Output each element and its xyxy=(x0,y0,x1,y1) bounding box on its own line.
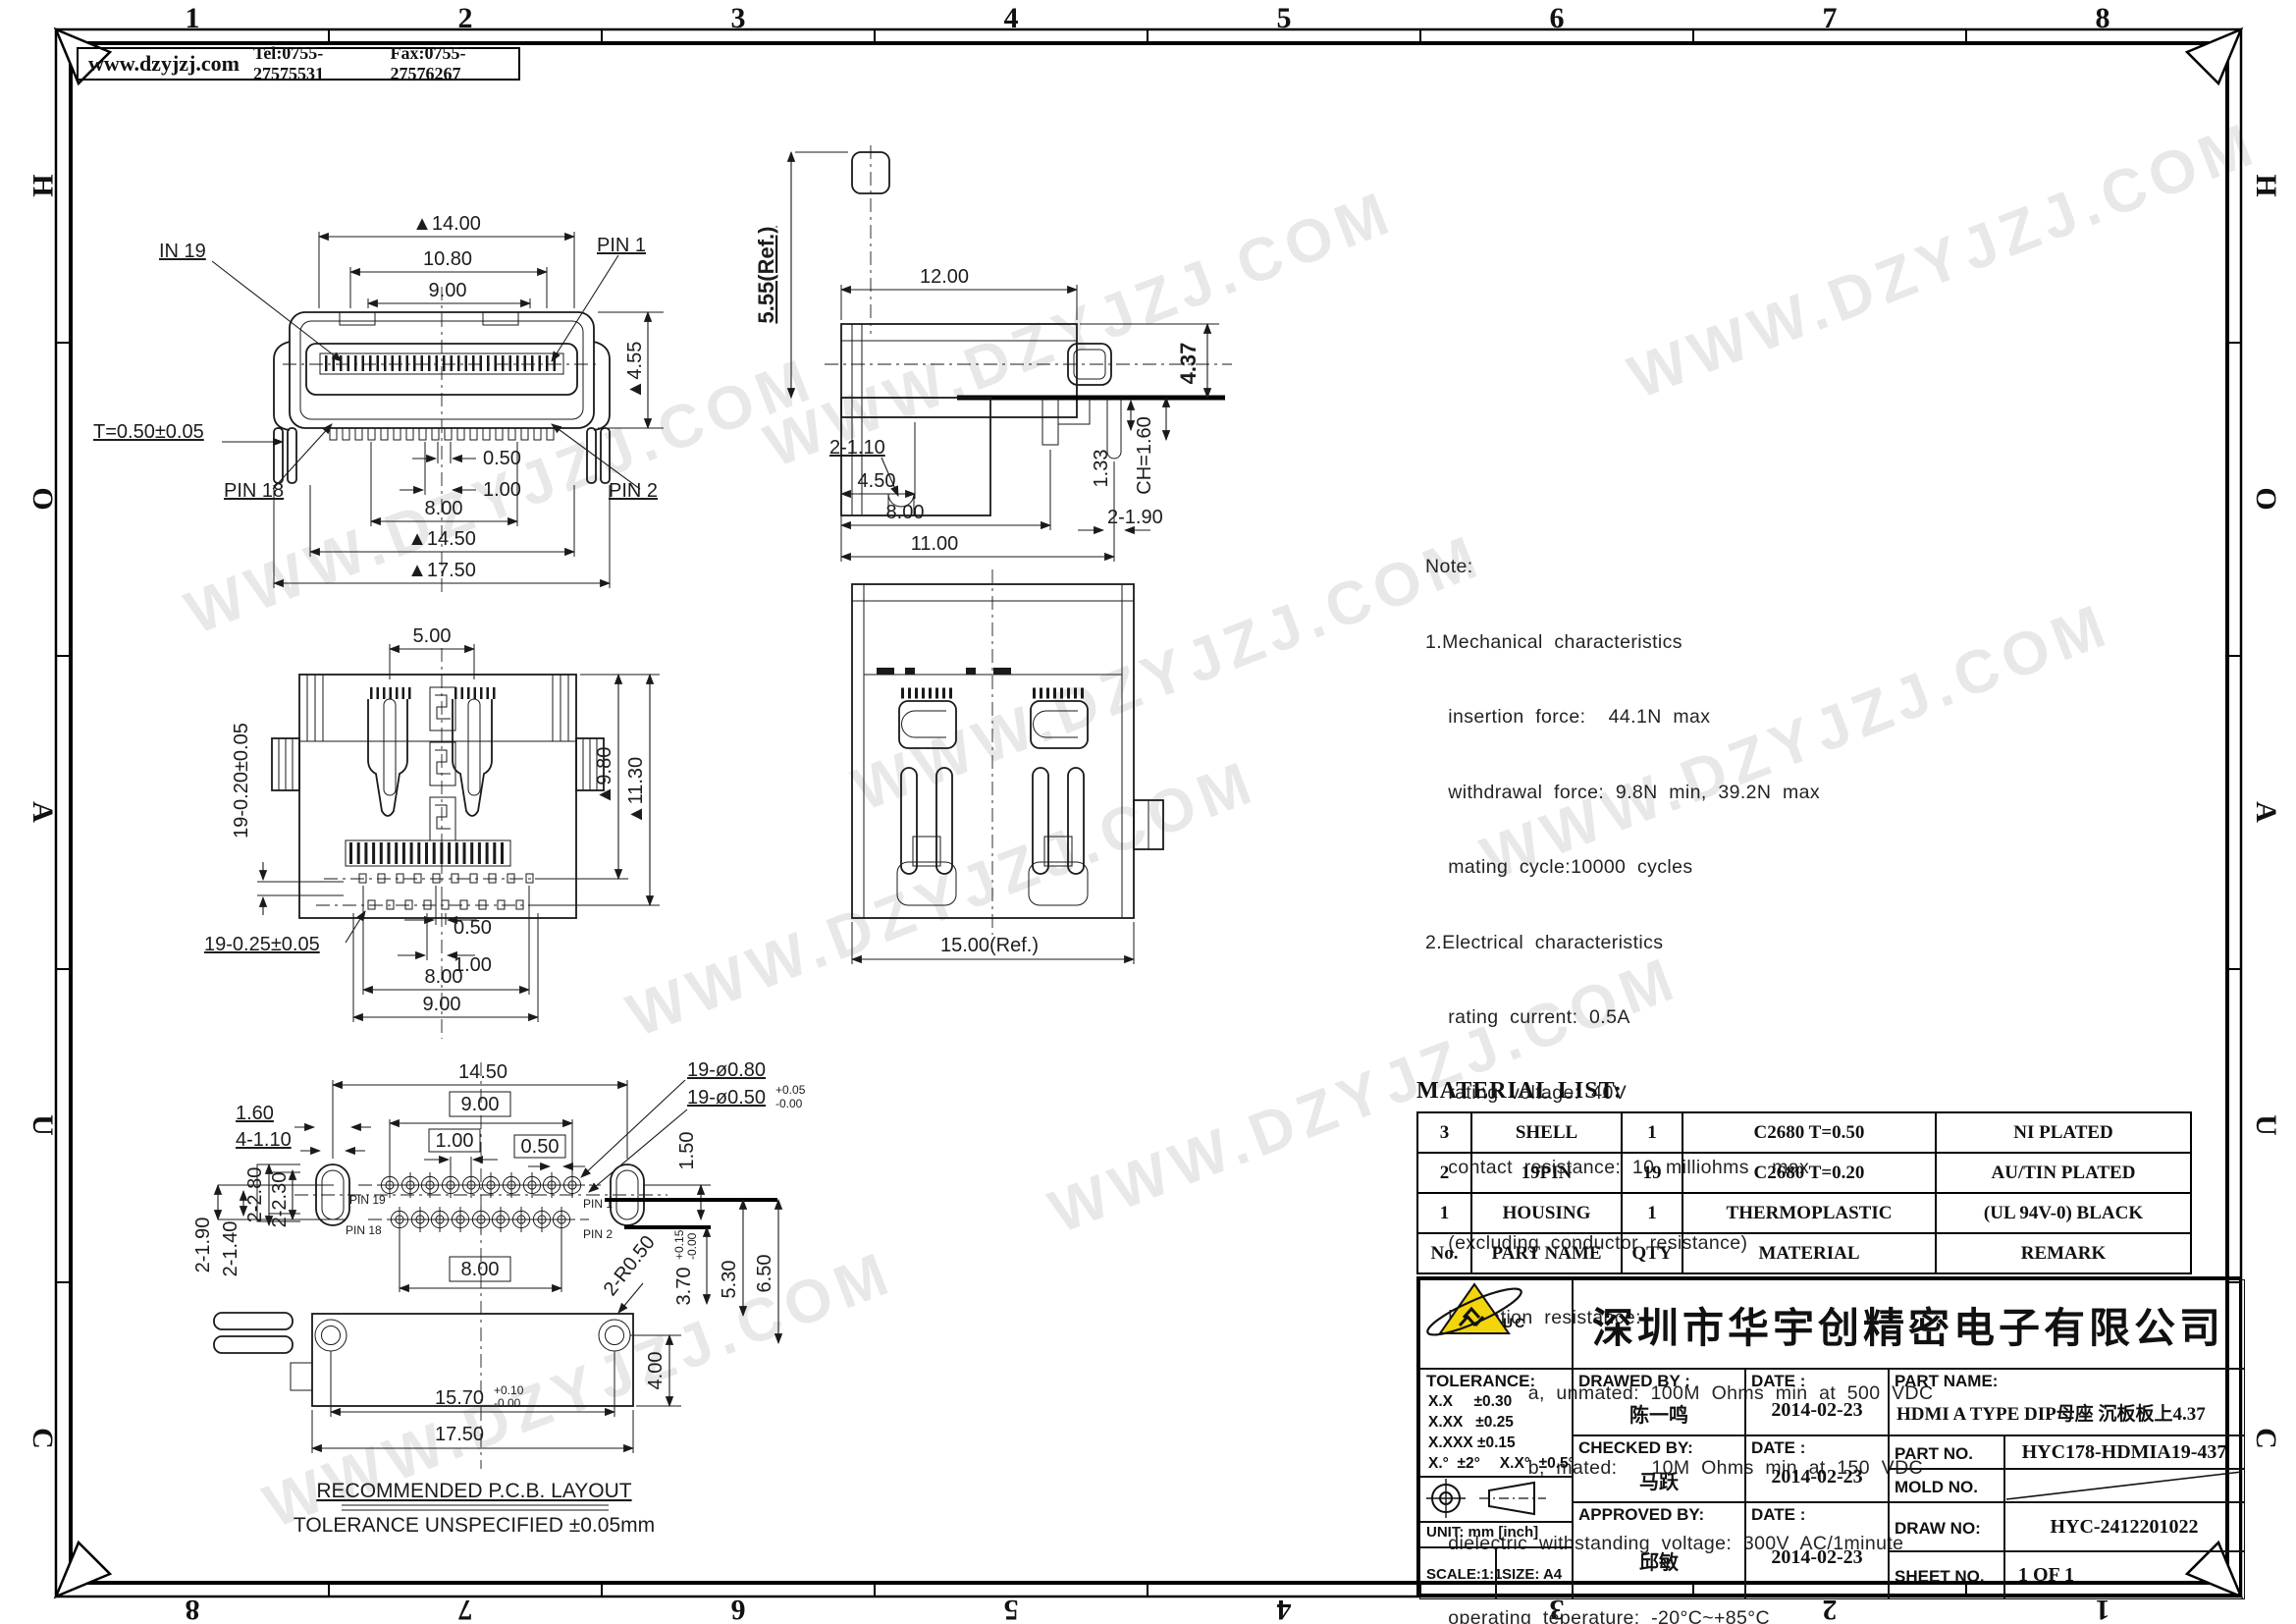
dim-tolerance: +0.15 xyxy=(672,1229,686,1260)
zone-right-5: C xyxy=(2249,1419,2282,1458)
pcb-caption-tolerance: TOLERANCE UNSPECIFIED ±0.05mm xyxy=(294,1514,655,1537)
sheet-no-label-cell: SHEET NO. xyxy=(1888,1550,2005,1599)
dim: 2-2.80 xyxy=(244,1167,266,1223)
date-cell: DATE : 2014-02-23 xyxy=(1744,1501,1890,1599)
company-logo: HOAUC xyxy=(1419,1279,1574,1370)
zone-right-1: H xyxy=(2249,166,2282,205)
note-line: insertion force: 44.1N max xyxy=(1425,705,1998,731)
tolerance-box: TOLERANCE: X.X ±0.30 X.XX ±0.25 X.XXX ±0… xyxy=(1419,1368,1574,1478)
label-pin19: PIN 19 xyxy=(349,1193,386,1207)
mold-no-label: MOLD NO. xyxy=(1889,1475,1978,1497)
view-pcb-layout: 14.50 9.00 1.00 0.50 1.60 4-1.10 2-2.80 xyxy=(192,1059,806,1537)
dim: 1.50 xyxy=(676,1132,698,1170)
dim: 10.80 xyxy=(423,248,472,270)
cell-material: THERMOPLASTIC xyxy=(1682,1193,1936,1233)
dim: 5.55(Ref.) xyxy=(754,226,778,323)
dim: CH=1.60 xyxy=(1134,416,1155,495)
zone-left-1: H xyxy=(26,166,59,205)
date-value: 2014-02-23 xyxy=(1745,1399,1889,1422)
date-value: 2014-02-23 xyxy=(1745,1546,1889,1569)
tolerance-title: TOLERANCE: xyxy=(1420,1369,1573,1391)
date-label: DATE : xyxy=(1745,1435,1889,1458)
dim: 4-1.10 xyxy=(236,1129,292,1151)
zone-top-5: 5 xyxy=(1264,2,1304,35)
latch-contact xyxy=(453,693,496,816)
zone-top-7: 7 xyxy=(1810,2,1849,35)
zone-left-2: O xyxy=(26,479,59,518)
zone-bottom-7: 7 xyxy=(446,1593,485,1624)
note-line: 1.Mechanical characteristics xyxy=(1425,630,1998,656)
dim: 8.00 xyxy=(425,498,463,519)
date-cell: DATE : 2014-02-23 xyxy=(1744,1435,1890,1503)
zone-top-4: 4 xyxy=(991,2,1031,35)
latch-contact xyxy=(368,693,411,816)
zone-right-2: O xyxy=(2249,479,2282,518)
zone-left-4: U xyxy=(26,1106,59,1145)
sheet-no-value: 1 OF 1 xyxy=(2003,1550,2245,1599)
dim-tolerance: +0.10 xyxy=(494,1383,524,1397)
dim: ▲14.50 xyxy=(407,528,476,550)
dim: 4.37 xyxy=(1176,343,1201,385)
dip-pin-row-b xyxy=(368,900,523,909)
dim: 4.50 xyxy=(858,470,896,492)
tolerance-angle: X.° ±2° xyxy=(1420,1453,1480,1474)
header-no: No. xyxy=(1417,1233,1471,1273)
dim: 6.50 xyxy=(754,1255,775,1293)
cell-part: 19PIN xyxy=(1471,1153,1622,1193)
dim: 12.00 xyxy=(920,266,969,288)
dim: ▲14.00 xyxy=(412,213,481,235)
draw-no-label: DRAW NO: xyxy=(1889,1516,1981,1539)
date-value: 2014-02-23 xyxy=(1745,1466,1889,1489)
dim-tolerance: -0.00 xyxy=(494,1396,521,1410)
dim: 15.70 xyxy=(435,1387,484,1409)
hoauc-logo-icon xyxy=(1420,1280,1528,1341)
dim: 19-ø0.80 xyxy=(687,1059,766,1081)
dim: 1.33 xyxy=(1091,450,1112,488)
zone-left-3: A xyxy=(26,792,59,832)
table-header-row: No. PART NAME QTY MATERIAL REMARK xyxy=(1417,1233,2191,1273)
view-bottom: 5.00 xyxy=(204,625,660,1039)
dip-pin-row-a xyxy=(359,874,533,883)
dim: 3.70 xyxy=(673,1268,695,1306)
dim: 5.00 xyxy=(413,625,452,647)
notes-title: Note: xyxy=(1425,555,1998,580)
dim: 14.50 xyxy=(458,1061,507,1083)
dim: 1.60 xyxy=(236,1103,274,1124)
dim-tolerance: -0.00 xyxy=(685,1232,699,1260)
table-row: 1 HOUSING 1 THERMOPLASTIC (UL 94V-0) BLA… xyxy=(1417,1193,2191,1233)
date-label: DATE : xyxy=(1745,1502,1889,1525)
note-line: mating cycle:10000 cycles xyxy=(1425,855,1998,881)
note-line: 2.Electrical characteristics xyxy=(1425,931,1998,956)
dim: 1.00 xyxy=(483,479,521,501)
zone-bottom-8: 8 xyxy=(173,1593,212,1624)
dim: 5.30 xyxy=(719,1261,740,1299)
note-line: withdrawal force: 9.8N min, 39.2N max xyxy=(1425,781,1998,806)
dim: 11.00 xyxy=(911,533,959,555)
dim: 15.00(Ref.) xyxy=(940,935,1039,956)
cell-material: C2680 T=0.20 xyxy=(1682,1153,1936,1193)
unit-label: UNIT: mm [inch] xyxy=(1420,1522,1573,1541)
dim: 2-1.40 xyxy=(220,1221,241,1277)
dim: 2-1.10 xyxy=(829,437,885,459)
date-cell: DATE : 2014-02-23 xyxy=(1744,1368,1890,1436)
unit-cell: UNIT: mm [inch] xyxy=(1419,1521,1574,1548)
vendor-fax: Fax:0755-27576267 xyxy=(391,43,518,84)
part-name-cell: PART NAME: HDMI A TYPE DIP母座 沉板板上4.37 xyxy=(1888,1368,2245,1436)
projection-symbols xyxy=(1419,1476,1574,1523)
checked-by-label: CHECKED BY: xyxy=(1573,1435,1745,1458)
dim: 2-1.90 xyxy=(1107,507,1163,528)
dim-tolerance: -0.00 xyxy=(775,1097,803,1110)
drawed-by-label: DRAWED BY : xyxy=(1573,1369,1745,1391)
title-block: HOAUC 深圳市华宇创精密电子有限公司 TOLERANCE: X.X ±0.3… xyxy=(1416,1276,2242,1597)
pcb-pin-row-bottom xyxy=(387,1207,574,1232)
cell-part: HOUSING xyxy=(1471,1193,1622,1233)
vendor-info-box: www.dzyjzj.com Tel:0755-27575531 Fax:075… xyxy=(77,47,520,81)
part-name-label: PART NAME: xyxy=(1889,1369,2244,1391)
material-list-heading: MATERIAL LIST: xyxy=(1416,1078,1623,1105)
label-pin18: PIN 18 xyxy=(346,1223,382,1237)
header-qty: QTY xyxy=(1622,1233,1682,1273)
rear-contact xyxy=(897,693,956,905)
vendor-website: www.dzyjzj.com xyxy=(88,51,240,77)
pcb-caption-title: RECOMMENDED P.C.B. LAYOUT xyxy=(316,1480,631,1502)
tolerance-angle: X.X° ±0.5° xyxy=(1492,1453,1575,1474)
label-thickness: T=0.50±0.05 xyxy=(93,421,204,443)
size-label: SIZE: A4 xyxy=(1496,1563,1562,1583)
label-pin1: PIN 1 xyxy=(597,235,646,256)
material-list-table: 3 SHELL 1 C2680 T=0.50 NI PLATED 2 19PIN… xyxy=(1416,1111,2192,1274)
cell-material: C2680 T=0.50 xyxy=(1682,1112,1936,1153)
cell-no: 2 xyxy=(1417,1153,1471,1193)
company-name: 深圳市华宇创精密电子有限公司 xyxy=(1572,1279,2245,1370)
size-cell: SIZE: A4 xyxy=(1495,1546,1574,1599)
label-in19: IN 19 xyxy=(159,241,206,262)
zone-top-2: 2 xyxy=(446,2,485,35)
zone-right-4: U xyxy=(2249,1106,2282,1145)
label-pin18: PIN 18 xyxy=(224,480,284,502)
note-line: rating current: 0.5A xyxy=(1425,1005,1998,1031)
tolerance-row: X.X ±0.30 xyxy=(1420,1391,1573,1412)
dim: 9.00 xyxy=(423,994,461,1015)
projection-symbol-icon xyxy=(1420,1477,1568,1520)
cell-remark: NI PLATED xyxy=(1936,1112,2191,1153)
note-line: operating teperature: -20°C~+85°C xyxy=(1425,1606,1998,1624)
dim: 17.50 xyxy=(435,1424,484,1445)
view-rear: 15.00(Ref.) xyxy=(852,569,1163,964)
zone-top-1: 1 xyxy=(173,2,212,35)
dim: ▲9.80 xyxy=(594,747,615,805)
dim: 0.50 xyxy=(521,1136,560,1158)
dim: 1.00 xyxy=(436,1130,474,1152)
zone-bottom-4: 4 xyxy=(1264,1593,1304,1624)
drawing-sheet: WWW.DZYJZJ.COM WWW.DZYJZJ.COM WWW.DZYJZJ… xyxy=(0,0,2296,1624)
dim: ▲17.50 xyxy=(407,560,476,581)
blank-diagonal xyxy=(2004,1469,2244,1501)
dim: 0.50 xyxy=(483,448,521,469)
dim: 19-0.20±0.05 xyxy=(231,723,252,839)
dim: 2-1.90 xyxy=(192,1218,214,1273)
scale-label: SCALE:1:1 xyxy=(1420,1563,1503,1583)
dim: 8.00 xyxy=(425,966,463,988)
cell-no: 3 xyxy=(1417,1112,1471,1153)
dim: ▲4.55 xyxy=(624,342,646,400)
cell-no: 1 xyxy=(1417,1193,1471,1233)
dim: 19-0.25±0.05 xyxy=(204,934,320,955)
dim: 0.50 xyxy=(454,917,492,939)
approved-by-name: 邱敏 xyxy=(1573,1546,1745,1575)
part-no-label: PART NO. xyxy=(1889,1441,1973,1464)
dim: 19-ø0.50 xyxy=(687,1087,766,1109)
scale-cell: SCALE:1:1 xyxy=(1419,1546,1497,1599)
cell-qty: 19 xyxy=(1622,1153,1682,1193)
sheet-no-label: SHEET NO. xyxy=(1889,1564,1985,1587)
cell-remark: AU/TIN PLATED xyxy=(1936,1153,2191,1193)
header-material: MATERIAL xyxy=(1682,1233,1936,1273)
mold-no-value xyxy=(2003,1468,2245,1503)
part-no-label-cell: PART NO. xyxy=(1888,1435,2005,1470)
label-pin2: PIN 2 xyxy=(583,1227,613,1241)
dim: 8.00 xyxy=(461,1259,500,1280)
dim: 2-R0.50 xyxy=(600,1231,660,1300)
zone-bottom-6: 6 xyxy=(719,1593,758,1624)
part-no-value: HYC178-HDMIA19-437 xyxy=(2003,1435,2245,1470)
cell-qty: 1 xyxy=(1622,1193,1682,1233)
view-side: 5.55(Ref.) 12.00 2-1.10 4.50 xyxy=(754,145,1232,562)
rear-contact xyxy=(1029,693,1088,905)
zone-left-5: C xyxy=(26,1419,59,1458)
checked-by-name: 马跃 xyxy=(1573,1466,1745,1494)
mold-no-label-cell: MOLD NO. xyxy=(1888,1468,2005,1503)
table-row: 2 19PIN 19 C2680 T=0.20 AU/TIN PLATED xyxy=(1417,1153,2191,1193)
cell-remark: (UL 94V-0) BLACK xyxy=(1936,1193,2191,1233)
dim: 4.00 xyxy=(645,1352,667,1390)
dim-tolerance: +0.05 xyxy=(775,1083,806,1097)
dim: ▲11.30 xyxy=(625,757,647,824)
cell-part: SHELL xyxy=(1471,1112,1622,1153)
approved-by-label: APPROVED BY: xyxy=(1573,1502,1745,1525)
date-label: DATE : xyxy=(1745,1369,1889,1391)
checked-by-cell: CHECKED BY: 马跃 xyxy=(1572,1435,1746,1503)
header-remark: REMARK xyxy=(1936,1233,2191,1273)
zone-bottom-5: 5 xyxy=(991,1593,1031,1624)
dim: 8.00 xyxy=(886,502,925,523)
zone-top-8: 8 xyxy=(2083,2,2122,35)
draw-no-value: HYC-2412201022 xyxy=(2003,1501,2245,1552)
table-row: 3 SHELL 1 C2680 T=0.50 NI PLATED xyxy=(1417,1112,2191,1153)
part-name-value: HDMI A TYPE DIP母座 沉板板上4.37 xyxy=(1889,1399,2244,1426)
cell-qty: 1 xyxy=(1622,1112,1682,1153)
drawed-by-name: 陈一鸣 xyxy=(1573,1399,1745,1428)
tolerance-row: X.XX ±0.25 xyxy=(1420,1412,1573,1433)
view-front: ▲14.00 10.80 9.00 IN 19 PIN 1 ▲4.55 T=0.… xyxy=(93,213,664,593)
drawed-by-cell: DRAWED BY : 陈一鸣 xyxy=(1572,1368,1746,1436)
header-part: PART NAME xyxy=(1471,1233,1622,1273)
zone-top-3: 3 xyxy=(719,2,758,35)
draw-no-label-cell: DRAW NO: xyxy=(1888,1501,2005,1552)
tolerance-row: X.XXX ±0.15 xyxy=(1420,1433,1573,1453)
vendor-tel: Tel:0755-27575531 xyxy=(253,43,377,84)
dim: 9.00 xyxy=(429,280,467,301)
approved-by-cell: APPROVED BY: 邱敏 xyxy=(1572,1501,1746,1599)
dim: 9.00 xyxy=(461,1094,500,1115)
zone-right-3: A xyxy=(2249,792,2282,832)
zone-top-6: 6 xyxy=(1537,2,1576,35)
